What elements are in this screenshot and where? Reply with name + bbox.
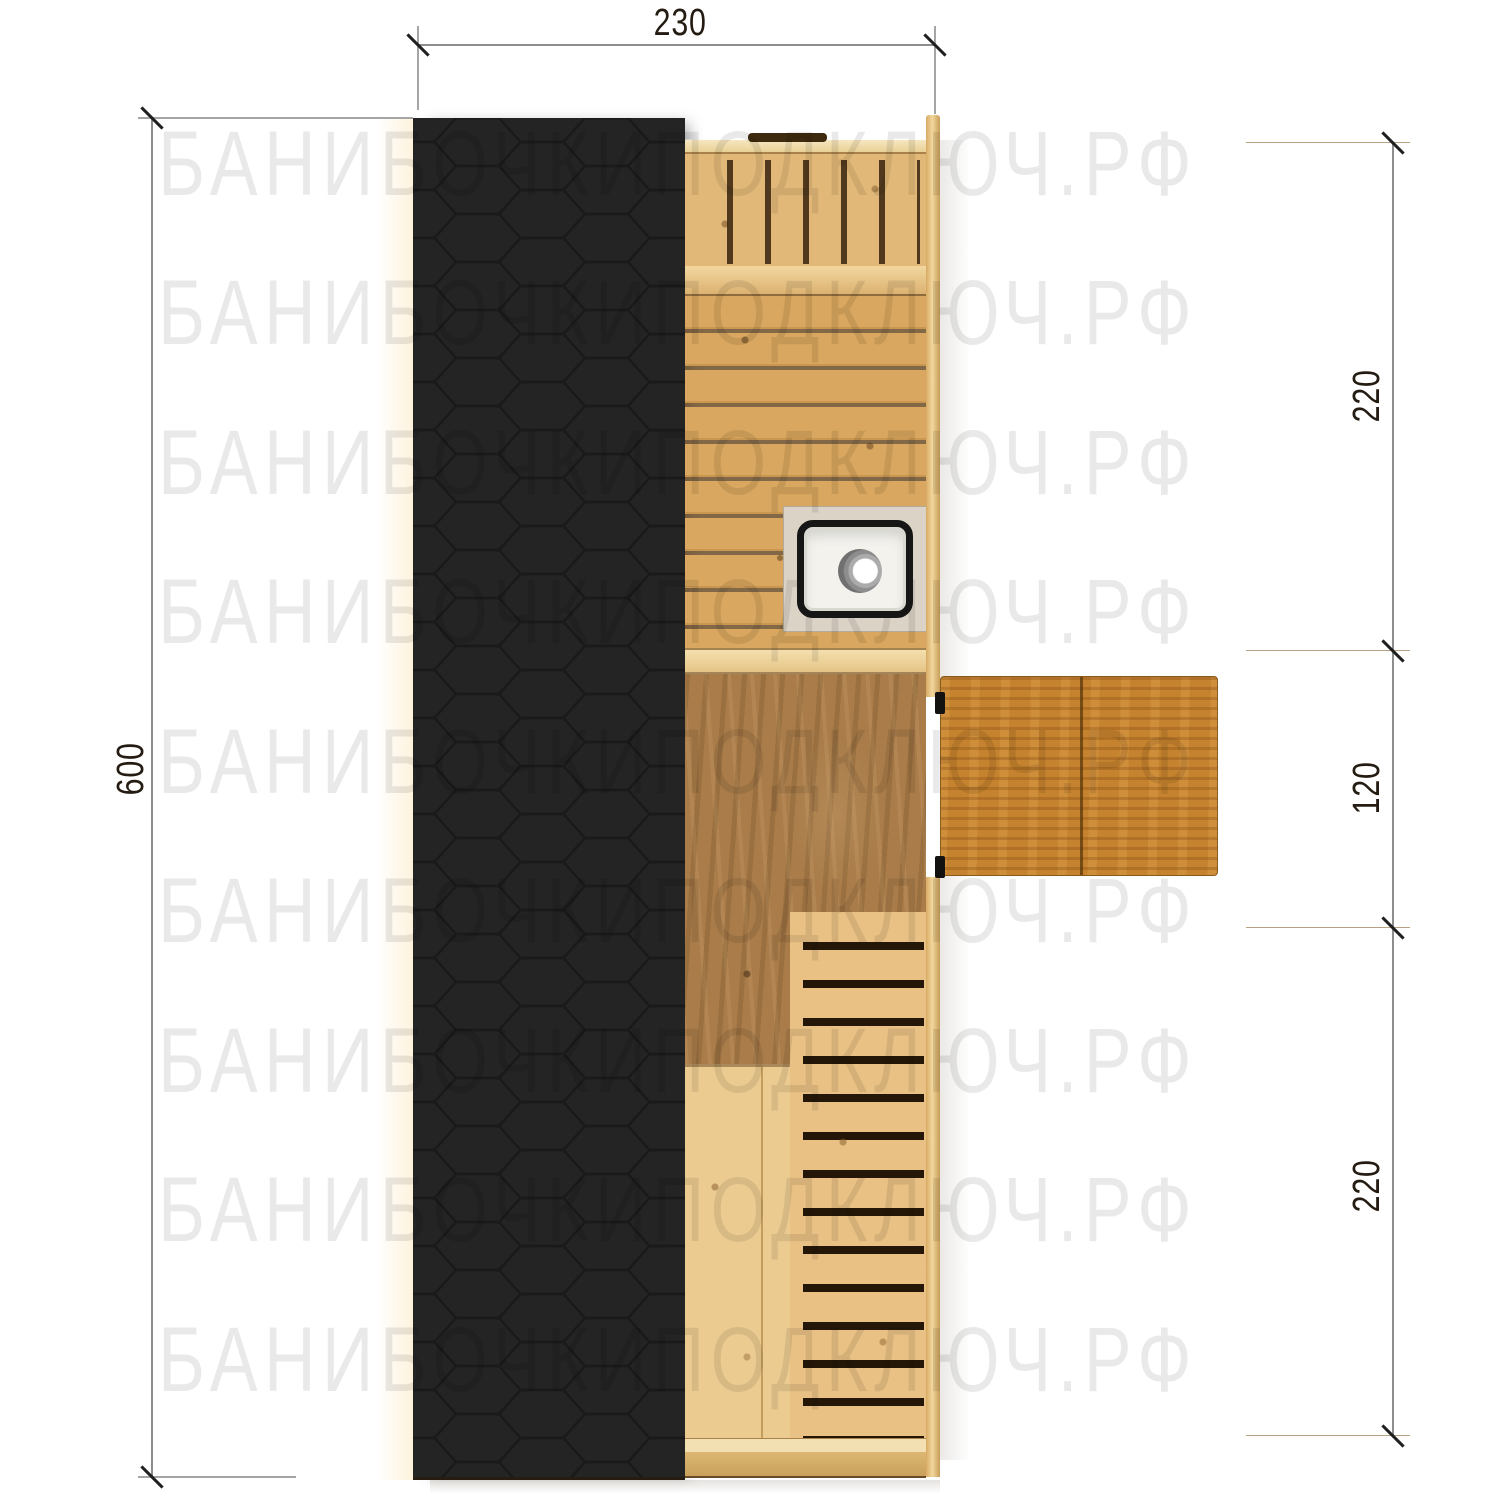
faucet-icon — [838, 549, 882, 593]
open-double-door — [940, 676, 1218, 876]
ext-line — [1246, 927, 1410, 928]
ext-line — [1246, 1435, 1410, 1436]
platform-plank-seam — [761, 1067, 763, 1438]
lounger-slats — [803, 912, 924, 1438]
ext-line — [1246, 142, 1410, 143]
ext-line — [417, 26, 419, 110]
door-leaf-seam — [1080, 677, 1083, 875]
floor-plan-canvas: БАНИБОЧКИПОДКЛЮЧ.РФ БАНИБОЧКИПОДКЛЮЧ.РФ … — [0, 0, 1500, 1500]
sauna-step-platform — [685, 1064, 790, 1438]
roof-hex-shingles — [413, 118, 685, 1480]
top-exterior-wall — [685, 140, 926, 154]
dim-label-height: 600 — [107, 724, 155, 814]
door-hinge-icon — [935, 856, 945, 878]
ext-line — [1246, 650, 1410, 651]
right-wall-lower — [926, 877, 940, 1477]
hexagon-pattern-icon — [413, 118, 685, 1477]
partition-wall — [685, 648, 926, 674]
door-hinge-icon — [935, 692, 945, 714]
dim-label-right-bottom: 220 — [1343, 1141, 1391, 1231]
ext-line — [138, 1476, 296, 1478]
vestibule-bench-planks — [685, 154, 926, 266]
roof-edge-glow — [378, 118, 413, 1480]
dim-value: 120 — [1346, 761, 1389, 814]
right-wall-upper — [926, 115, 940, 697]
bottom-interior-wall — [685, 1438, 926, 1452]
dim-label-right-middle: 120 — [1343, 743, 1391, 833]
dim-value: 600 — [110, 742, 153, 795]
dim-value: 220 — [1346, 1159, 1389, 1212]
dim-label-right-top: 220 — [1343, 351, 1391, 441]
dim-line-right — [1392, 143, 1394, 1436]
bench-plank-slots — [695, 160, 920, 264]
bench-front-edge — [685, 266, 926, 296]
dim-value: 230 — [653, 2, 706, 45]
ext-line — [138, 117, 413, 119]
building-bottom-shadow — [430, 1480, 940, 1494]
bottom-exterior-wall — [685, 1452, 926, 1478]
ext-line — [934, 26, 936, 114]
dim-label-width: 230 — [620, 2, 740, 44]
dim-value: 220 — [1346, 369, 1389, 422]
sauna-bench-lounger — [790, 912, 926, 1438]
top-door-handle — [748, 133, 827, 142]
